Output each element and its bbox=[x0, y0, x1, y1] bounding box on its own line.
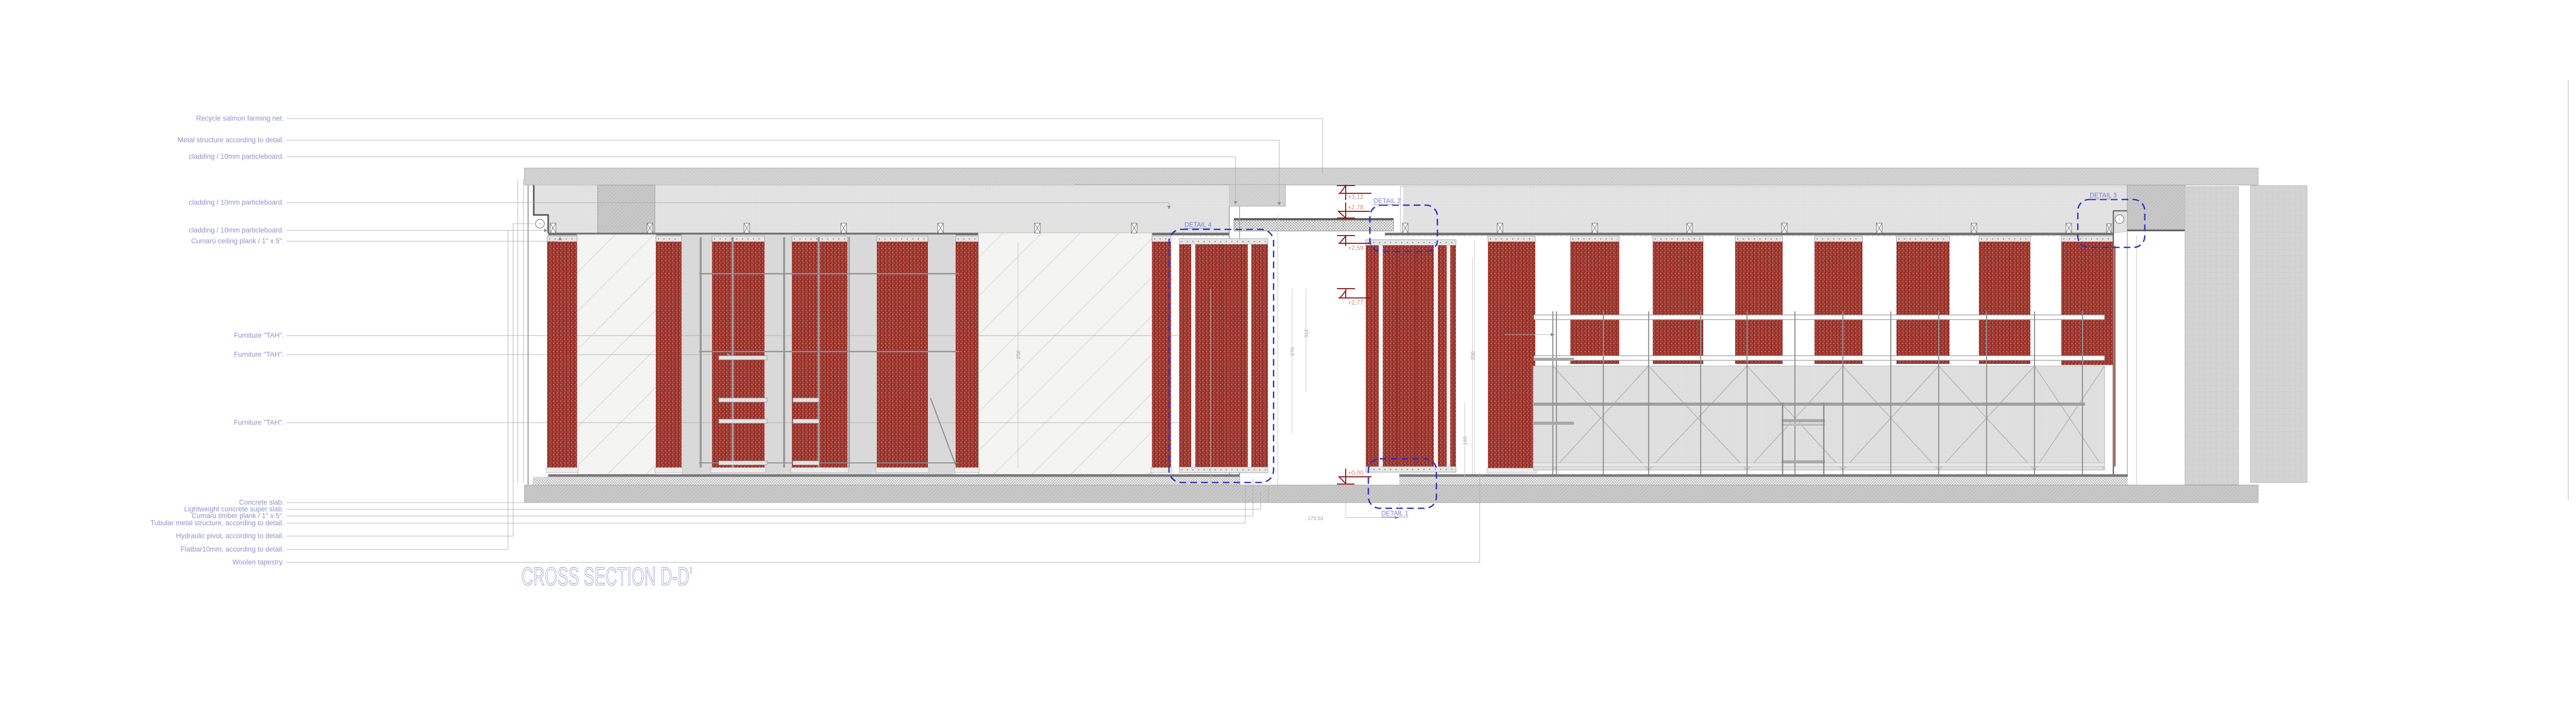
svg-text:cladding / 10mm particleboard.: cladding / 10mm particleboard. bbox=[189, 153, 284, 160]
svg-text:Tubular metal structure, accor: Tubular metal structure, according to de… bbox=[150, 519, 284, 527]
svg-text:250: 250 bbox=[1016, 350, 1022, 359]
svg-text:Metal structure according to d: Metal structure according to detail. bbox=[178, 136, 284, 144]
svg-text:250: 250 bbox=[1470, 351, 1476, 360]
svg-text:312: 312 bbox=[1304, 329, 1310, 338]
svg-text:Woolen tapestry.: Woolen tapestry. bbox=[232, 558, 284, 566]
svg-text:Cumarú timber plank / 1" x 5".: Cumarú timber plank / 1" x 5". bbox=[192, 512, 284, 520]
svg-text:+2,78: +2,78 bbox=[1348, 204, 1364, 211]
svg-text:DETAIL 2: DETAIL 2 bbox=[1374, 197, 1401, 205]
svg-text:DETAIL 1: DETAIL 1 bbox=[1381, 510, 1409, 517]
svg-text:cladding / 10mm particleboard.: cladding / 10mm particleboard. bbox=[189, 198, 284, 206]
svg-text:Recycle salmon farming net.: Recycle salmon farming net. bbox=[196, 114, 284, 122]
svg-text:+3,12: +3,12 bbox=[1348, 193, 1364, 201]
svg-text:DETAIL 3: DETAIL 3 bbox=[2090, 192, 2117, 199]
svg-text:cladding / 10mm particleboard.: cladding / 10mm particleboard. bbox=[189, 226, 284, 234]
svg-text:+2,77: +2,77 bbox=[1348, 299, 1364, 306]
svg-text:+0,00: +0,00 bbox=[1348, 469, 1364, 476]
svg-text:Furniture "TAH".: Furniture "TAH". bbox=[234, 331, 284, 339]
svg-text:Cumarú ceiling plank / 1" x 5": Cumarú ceiling plank / 1" x 5". bbox=[191, 237, 284, 245]
svg-text:CROSS SECTION D-D': CROSS SECTION D-D' bbox=[521, 563, 692, 591]
svg-text:DETAIL 4: DETAIL 4 bbox=[1184, 221, 1212, 228]
svg-text:+2,59: +2,59 bbox=[1348, 244, 1364, 252]
svg-text:Flatbar10mm, according to deta: Flatbar10mm, according to detail. bbox=[181, 545, 284, 553]
svg-text:140: 140 bbox=[1463, 436, 1468, 445]
svg-text:Furniture "TAH".: Furniture "TAH". bbox=[234, 351, 284, 358]
svg-text:Hydraulic pivot, according to: Hydraulic pivot, according to detail. bbox=[176, 532, 284, 540]
svg-text:Furniture "TAH".: Furniture "TAH". bbox=[234, 419, 284, 426]
svg-text:175,53: 175,53 bbox=[1308, 516, 1324, 522]
svg-text:276: 276 bbox=[1290, 347, 1296, 356]
